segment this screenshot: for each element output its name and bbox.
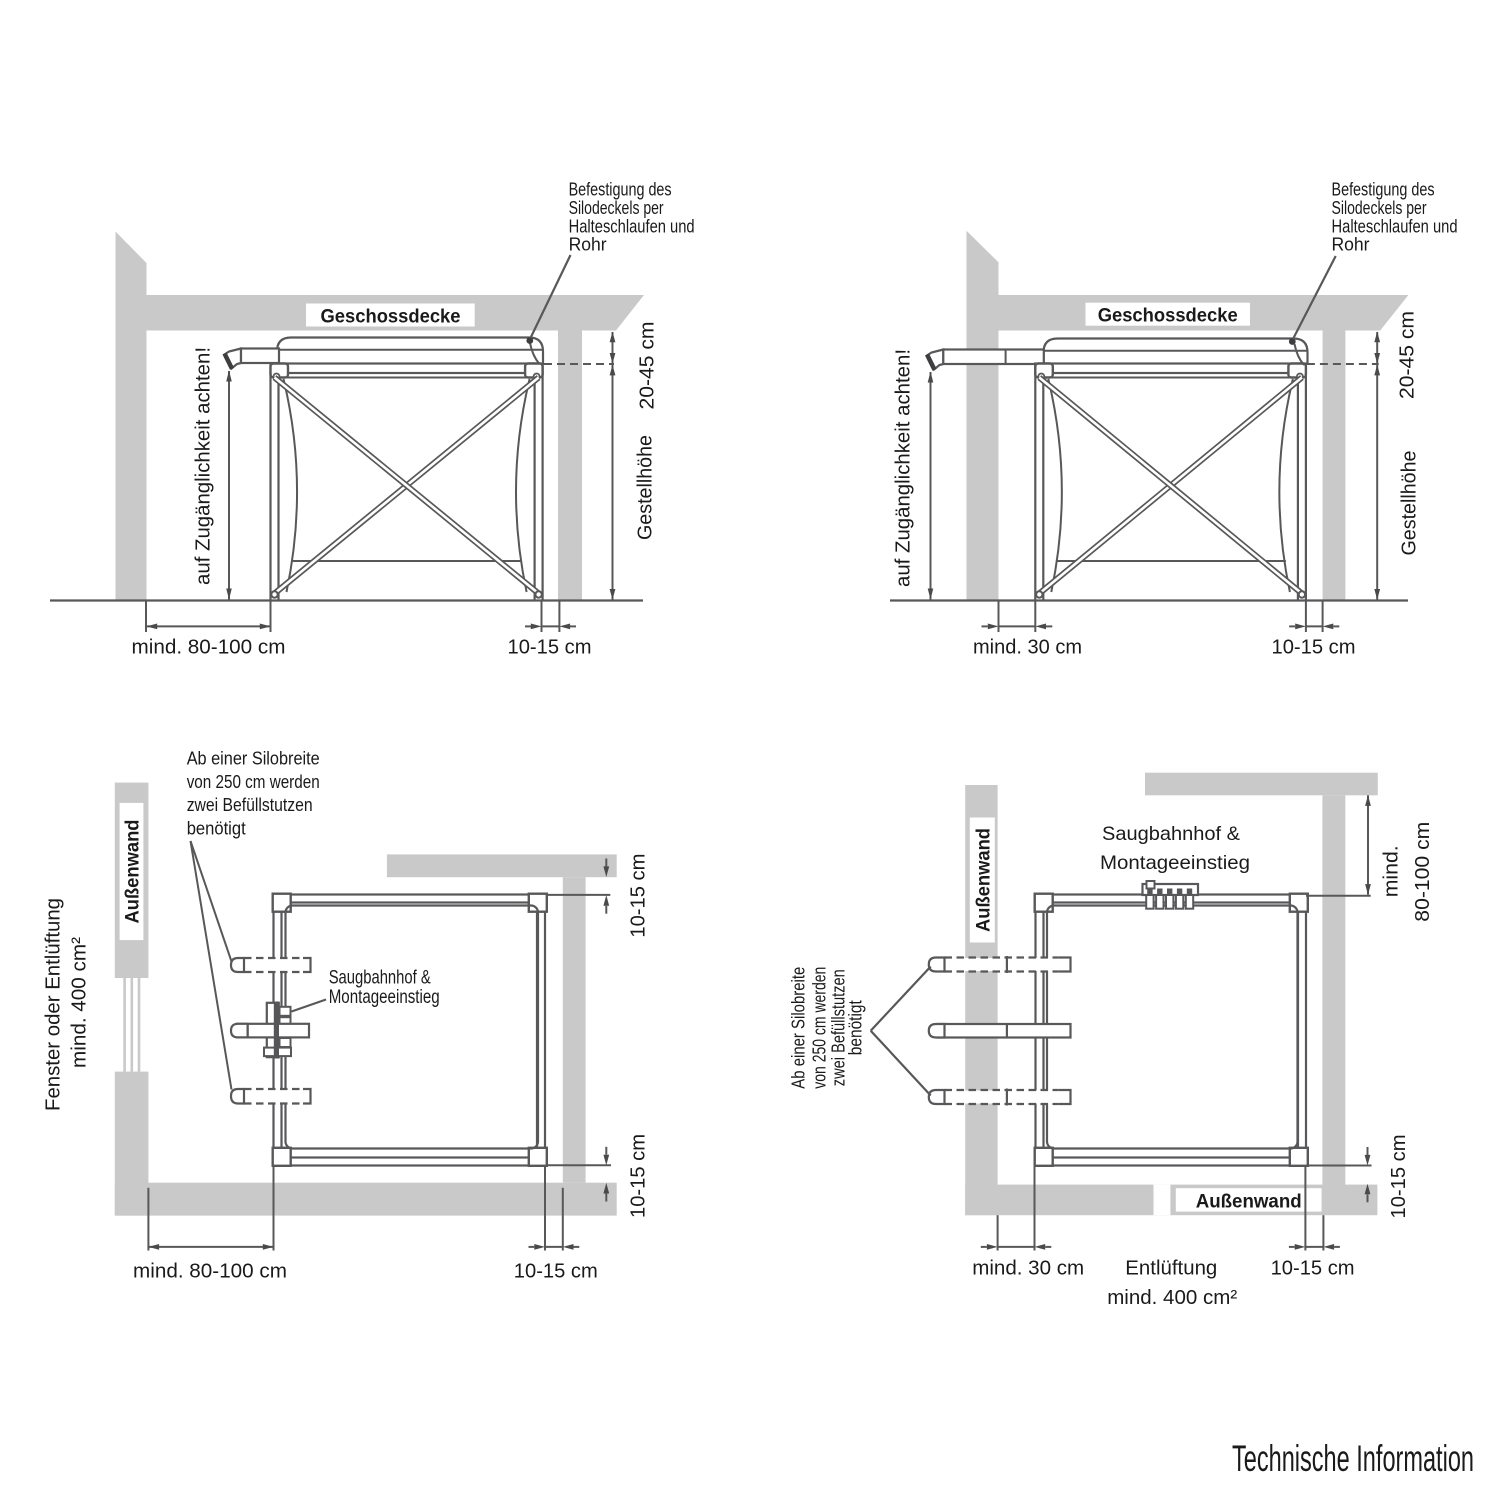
svg-text:80-100 cm: 80-100 cm — [1411, 822, 1434, 922]
svg-text:Rohr: Rohr — [569, 235, 607, 255]
svg-text:Außenwand: Außenwand — [972, 828, 994, 932]
svg-text:mind. 400 cm²: mind. 400 cm² — [1107, 1286, 1237, 1309]
svg-text:mind. 80-100 cm: mind. 80-100 cm — [132, 636, 286, 659]
svg-text:Außenwand: Außenwand — [1196, 1191, 1302, 1213]
svg-text:benötigt: benötigt — [845, 1000, 866, 1055]
svg-text:Befestigung des: Befestigung des — [569, 180, 672, 200]
svg-text:mind. 30 cm: mind. 30 cm — [973, 636, 1082, 659]
svg-text:Ab einer Silobreite: Ab einer Silobreite — [187, 748, 320, 769]
svg-text:Entlüftung: Entlüftung — [1125, 1256, 1217, 1279]
svg-text:mind. 80-100 cm: mind. 80-100 cm — [133, 1260, 287, 1283]
svg-text:von 250 cm werden: von 250 cm werden — [809, 967, 830, 1089]
svg-text:10-15 cm: 10-15 cm — [508, 636, 592, 659]
svg-text:Halteschlaufen und: Halteschlaufen und — [569, 216, 695, 236]
svg-text:10-15 cm: 10-15 cm — [626, 854, 649, 938]
svg-text:Montageeinstieg: Montageeinstieg — [1100, 852, 1250, 874]
svg-text:10-15 cm: 10-15 cm — [1271, 1256, 1355, 1279]
svg-text:auf Zugänglichkeit achten!: auf Zugänglichkeit achten! — [192, 347, 215, 585]
svg-text:Außenwand: Außenwand — [122, 820, 144, 924]
svg-text:mind. 400 cm²: mind. 400 cm² — [68, 937, 91, 1068]
svg-text:10-15 cm: 10-15 cm — [1272, 636, 1356, 659]
svg-text:Befestigung des: Befestigung des — [1332, 180, 1435, 200]
svg-text:Geschossdecke: Geschossdecke — [1098, 305, 1238, 327]
svg-text:Silodeckels per: Silodeckels per — [1332, 198, 1427, 218]
svg-text:Saugbahnhof &: Saugbahnhof & — [1102, 823, 1240, 845]
svg-text:20-45 cm: 20-45 cm — [636, 322, 659, 410]
svg-text:Ab einer Silobreite: Ab einer Silobreite — [787, 967, 808, 1089]
svg-text:auf Zugänglichkeit achten!: auf Zugänglichkeit achten! — [892, 349, 915, 587]
svg-text:10-15 cm: 10-15 cm — [514, 1260, 598, 1283]
svg-text:10-15 cm: 10-15 cm — [627, 1134, 650, 1218]
svg-text:Fenster oder Entlüftung: Fenster oder Entlüftung — [42, 898, 65, 1111]
svg-text:10-15 cm: 10-15 cm — [1387, 1135, 1410, 1219]
svg-text:Gestellhöhe: Gestellhöhe — [1398, 451, 1421, 556]
svg-text:20-45 cm: 20-45 cm — [1396, 311, 1419, 399]
svg-text:Gestellhöhe: Gestellhöhe — [634, 435, 657, 540]
svg-text:Halteschlaufen und: Halteschlaufen und — [1332, 216, 1458, 236]
svg-text:mind. 30 cm: mind. 30 cm — [972, 1256, 1084, 1279]
svg-text:zwei Befüllstutzen: zwei Befüllstutzen — [187, 794, 313, 815]
svg-text:Technische Information: Technische Information — [1232, 1438, 1474, 1479]
svg-text:von 250 cm werden: von 250 cm werden — [187, 771, 320, 792]
svg-text:Rohr: Rohr — [1332, 235, 1370, 255]
svg-text:mind.: mind. — [1379, 845, 1402, 897]
svg-text:Montageeinstieg: Montageeinstieg — [329, 986, 440, 1008]
svg-text:Silodeckels per: Silodeckels per — [569, 198, 664, 218]
svg-text:benötigt: benötigt — [187, 817, 246, 838]
svg-text:Geschossdecke: Geschossdecke — [321, 306, 461, 328]
